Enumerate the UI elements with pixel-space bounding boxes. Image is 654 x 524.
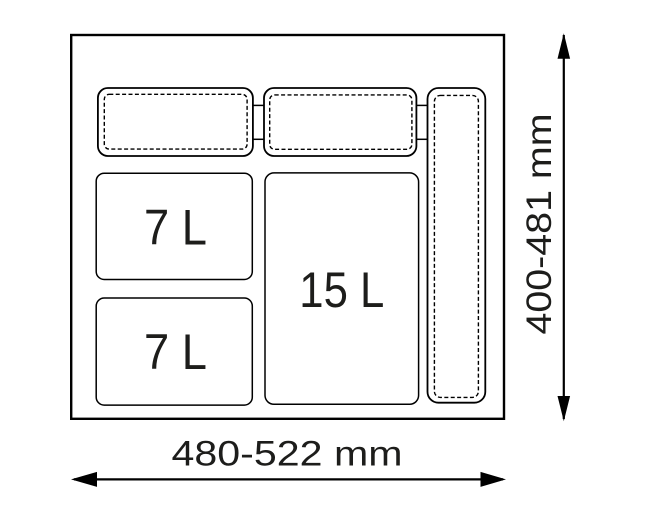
svg-text:15 L: 15 L: [299, 262, 384, 318]
svg-text:7 L: 7 L: [144, 324, 207, 380]
svg-text:400-481 mm: 400-481 mm: [520, 114, 559, 335]
svg-text:480-522 mm: 480-522 mm: [172, 435, 403, 474]
svg-text:7 L: 7 L: [144, 199, 207, 255]
